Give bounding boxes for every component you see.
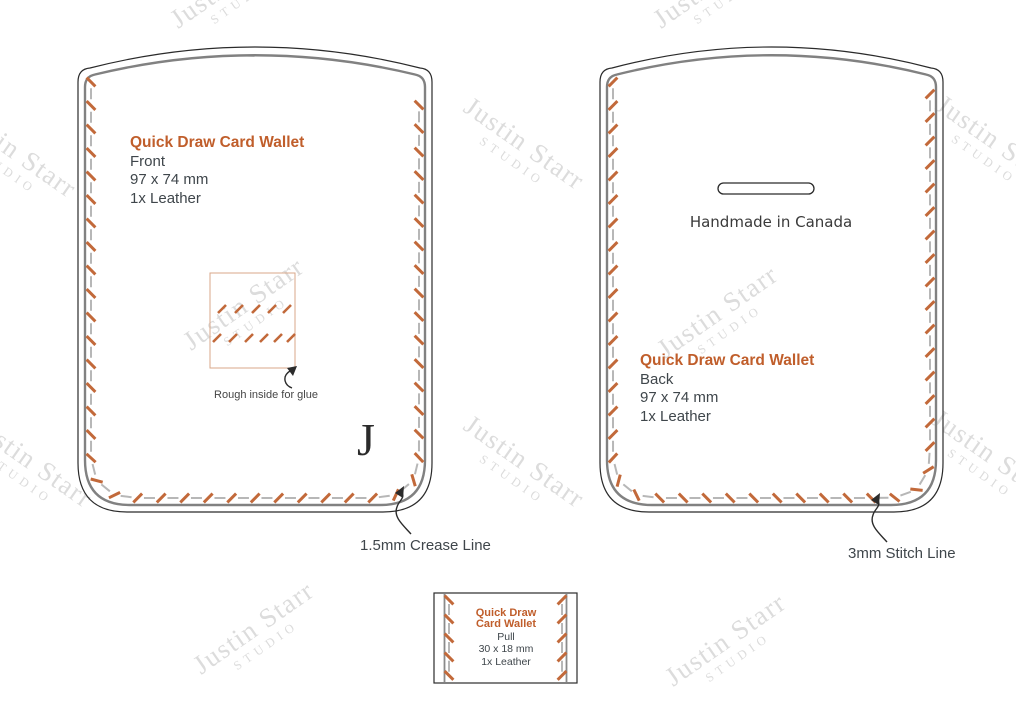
pull-part-label: Pull bbox=[452, 631, 560, 644]
front-cut-line bbox=[78, 47, 432, 512]
back-crease-line bbox=[607, 55, 936, 505]
back-cut-line bbox=[600, 47, 943, 512]
front-part-label: Front bbox=[130, 153, 304, 172]
front-title: Quick Draw Card Wallet bbox=[130, 134, 304, 153]
pattern-sheet: Justin StarrSTUDIOJustin StarrSTUDIOJust… bbox=[0, 0, 1016, 718]
glue-arrow bbox=[285, 371, 292, 388]
pull-material-label: 1x Leather bbox=[452, 656, 560, 669]
glue-area-box bbox=[210, 273, 295, 368]
pull-title-line2: Card Wallet bbox=[452, 619, 560, 631]
front-piece-outline bbox=[78, 47, 432, 512]
makers-mark: J bbox=[357, 420, 375, 460]
crease-line-label: 1.5mm Crease Line bbox=[360, 537, 491, 554]
stitch-callout-arrow bbox=[872, 500, 887, 542]
back-piece-outline bbox=[600, 47, 943, 512]
thumb-slot bbox=[718, 183, 814, 194]
back-info-block: Quick Draw Card Wallet Back 97 x 74 mm 1… bbox=[640, 352, 814, 426]
stitch-line-label: 3mm Stitch Line bbox=[848, 545, 956, 562]
back-title: Quick Draw Card Wallet bbox=[640, 352, 814, 371]
front-info-block: Quick Draw Card Wallet Front 97 x 74 mm … bbox=[130, 134, 304, 208]
back-material-label: 1x Leather bbox=[640, 408, 814, 427]
back-stitch-marks bbox=[609, 78, 935, 503]
stamp-label: Handmade in Canada bbox=[666, 213, 876, 231]
back-part-label: Back bbox=[640, 371, 814, 390]
back-size-label: 97 x 74 mm bbox=[640, 389, 814, 408]
glue-rough-marks bbox=[213, 305, 295, 342]
front-material-label: 1x Leather bbox=[130, 190, 304, 209]
pull-info-block: Quick Draw Card Wallet Pull 30 x 18 mm 1… bbox=[452, 605, 560, 671]
front-size-label: 97 x 74 mm bbox=[130, 171, 304, 190]
pull-size-label: 30 x 18 mm bbox=[452, 643, 560, 656]
glue-note-label: Rough inside for glue bbox=[206, 389, 326, 401]
stitch-arrow-head bbox=[871, 493, 880, 505]
glue-area bbox=[210, 273, 297, 388]
